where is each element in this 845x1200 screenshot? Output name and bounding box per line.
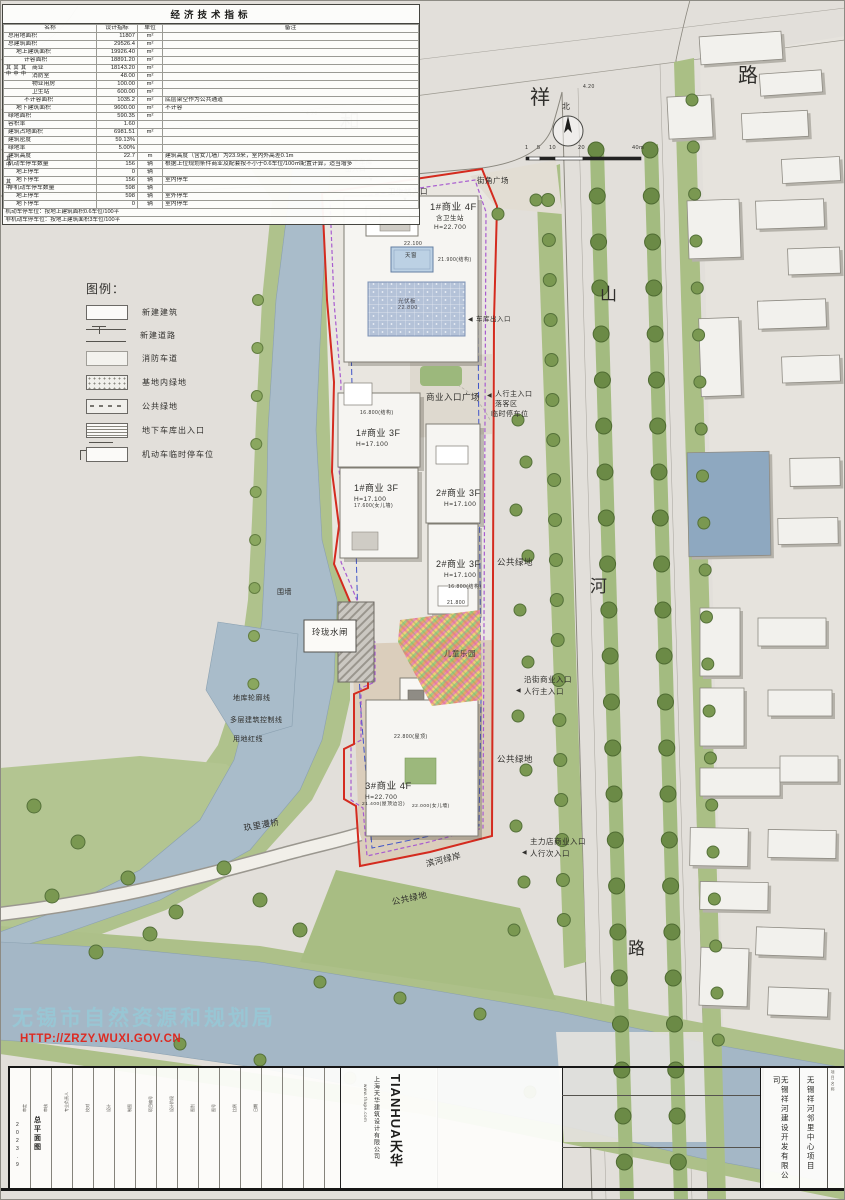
- plan-label: 儿童乐园: [444, 650, 476, 658]
- plan-label: 21.800: [447, 601, 465, 606]
- firm-website: www.thape.com: [362, 1084, 367, 1174]
- tree: [251, 391, 262, 402]
- tree: [647, 326, 663, 342]
- tree: [664, 924, 680, 940]
- tree: [691, 282, 703, 294]
- plan-label: 2#商业 3F: [436, 560, 481, 570]
- tree: [645, 234, 661, 250]
- titleblock-cell: 专业负责人: [64, 1092, 70, 1112]
- tree: [607, 832, 623, 848]
- tree: [660, 786, 676, 802]
- tree: [606, 786, 622, 802]
- tree: [510, 820, 522, 832]
- tree: [45, 889, 59, 903]
- qizhong-label: 其 中: [6, 156, 11, 168]
- plan-label: 20: [578, 146, 585, 152]
- tree: [589, 188, 605, 204]
- tree: [549, 554, 562, 567]
- tree: [598, 510, 614, 526]
- client-name: 无锡祥河建设开发有限公司: [772, 1076, 788, 1182]
- tree: [651, 464, 667, 480]
- scale-bar: [526, 157, 641, 160]
- table-row: 地下停车0辆室内停车: [4, 201, 419, 209]
- residential-building: [759, 70, 826, 99]
- residential-building: [700, 768, 783, 799]
- residential-building: [699, 31, 786, 68]
- plan-label: 人行主入口: [495, 391, 533, 399]
- tree: [249, 583, 260, 594]
- plan-label: 5: [537, 146, 541, 152]
- table-row: 绿地面积590.35m²: [4, 113, 419, 121]
- tree: [545, 354, 558, 367]
- tree: [553, 714, 566, 727]
- legend-swatch-road: [86, 329, 126, 342]
- tree: [530, 194, 542, 206]
- tree: [612, 1016, 628, 1032]
- table-row: 物业用房100.00m²: [4, 81, 419, 89]
- tree: [591, 234, 607, 250]
- table-row: 商业18143.20m²: [4, 65, 419, 73]
- tree: [252, 343, 263, 354]
- tree: [250, 487, 261, 498]
- table-footnote: 非机动车停车位：按地上建筑面积3车位/100平: [4, 217, 419, 225]
- indicator-table-header: 名称 设计指标 单位 备注: [4, 25, 419, 33]
- tree: [542, 194, 555, 207]
- titleblock-cell: 设计阶段: [169, 1096, 175, 1112]
- tree: [557, 914, 570, 927]
- legend-item: 消防车道: [86, 351, 214, 366]
- design-firm: 上海天华建筑设计有限公司: [372, 1076, 378, 1182]
- residential-building: [758, 299, 830, 332]
- tree: [121, 871, 135, 885]
- legend-swatch-parking: [86, 447, 128, 462]
- table-row: 不计容面积1035.2m²底层架空作为公共通道: [4, 97, 419, 105]
- residential-building: [741, 110, 811, 143]
- tree: [27, 799, 41, 813]
- tree: [661, 832, 677, 848]
- site-plan-page: 经济技术指标 名称 设计指标 单位 备注 总用地面积11807m²总建筑面积29…: [0, 0, 845, 1200]
- plan-label: 人行主入口: [524, 688, 564, 696]
- plan-label: 40m: [632, 146, 644, 152]
- tree: [492, 208, 504, 220]
- tree: [588, 142, 604, 158]
- table-row: 总用地面积11807m²: [4, 33, 419, 41]
- legend-item: 基地内绿地: [86, 375, 214, 390]
- indicator-table: 经济技术指标 名称 设计指标 单位 备注 总用地面积11807m²总建筑面积29…: [2, 4, 420, 225]
- tree: [648, 372, 664, 388]
- table-row: 建筑占地面积6981.51m²: [4, 129, 419, 137]
- indicator-table-title: 经济技术指标: [3, 5, 419, 24]
- plan-label: 山: [600, 286, 618, 304]
- col-header-unit: 单位: [138, 25, 163, 33]
- residential-building: [788, 247, 844, 278]
- plan-label: 天窗: [405, 254, 417, 260]
- tree: [650, 418, 666, 434]
- tree: [514, 604, 526, 616]
- plan-label: 河: [590, 578, 608, 596]
- table-row: 建筑密度59.13%: [4, 137, 419, 145]
- plan-label: 22.100: [404, 242, 422, 247]
- legend-title: 图例：: [86, 280, 214, 297]
- plan-label: H=17.100: [356, 441, 388, 448]
- plan-label: 含卫生站: [436, 215, 464, 222]
- tree: [600, 556, 616, 572]
- tree: [686, 94, 698, 106]
- plan-label: 路: [628, 940, 646, 958]
- legend-label: 基地内绿地: [142, 377, 187, 388]
- plan-label: H=22.700: [434, 224, 466, 231]
- tree: [712, 1034, 724, 1046]
- qizhong-label: 其 中: [6, 65, 11, 77]
- table-row: 卫生站600.00m²: [4, 89, 419, 97]
- tree: [693, 329, 705, 341]
- tree: [697, 470, 709, 482]
- table-row: 地下停车156辆室内停车: [4, 177, 419, 185]
- titleblock-cell: 图别: [190, 1104, 196, 1112]
- table-row: 消防室48.00m²: [4, 73, 419, 81]
- plan-label: 用地红线: [233, 736, 263, 744]
- tree: [544, 314, 557, 327]
- tree: [704, 752, 716, 764]
- tree: [708, 893, 720, 905]
- tree: [555, 794, 568, 807]
- building-1-shangye-3f-north: [338, 383, 424, 471]
- legend-label: 机动车临时停车位: [142, 449, 214, 460]
- legend-label: 公共绿地: [142, 401, 178, 412]
- residential-building: [767, 987, 831, 1020]
- tree: [652, 510, 668, 526]
- legend-swatch-garage: [86, 423, 128, 438]
- table-row: 总建筑面积29526.4m²: [4, 41, 419, 49]
- tree: [512, 710, 524, 722]
- plan-label: 地库轮廓线: [233, 695, 271, 703]
- tree: [654, 556, 670, 572]
- tree: [508, 924, 520, 936]
- tree: [254, 1054, 266, 1066]
- residential-building: [782, 355, 844, 386]
- tree: [520, 764, 532, 776]
- tianhua-logo: TIANHUA天华: [388, 1074, 402, 1182]
- plan-label: 车库出入口: [476, 316, 511, 323]
- qizhong-label: 其 中: [14, 65, 19, 77]
- tree: [554, 754, 567, 767]
- tree: [695, 423, 707, 435]
- tree: [551, 634, 564, 647]
- north-arrow: [553, 116, 583, 146]
- table-row: 机动车停车数量156辆根据上位规划条件商业及配套按不小于0.6车位/100㎡配置…: [4, 161, 419, 169]
- tree: [603, 694, 619, 710]
- legend-label: 新建道路: [140, 330, 176, 341]
- legend-item: 新建道路: [86, 329, 214, 342]
- plan-label: H=22.700: [365, 794, 397, 801]
- tree: [248, 631, 259, 642]
- plan-label: 16.800(结构): [360, 411, 394, 416]
- tree: [702, 658, 714, 670]
- col-header-note: 备注: [163, 25, 419, 33]
- plan-label: 22.000(女儿墙): [412, 804, 450, 809]
- project-name: 无锡祥河邻里中心项目: [806, 1076, 814, 1182]
- tree: [687, 141, 699, 153]
- residential-building: [690, 827, 752, 869]
- building-3-shangye-4f: [366, 678, 482, 840]
- indicator-table-foot: 机动车停车位：按地上建筑面积0.6车位/100平非机动车停车位：按地上建筑面积3…: [4, 209, 419, 225]
- tree: [522, 656, 534, 668]
- tree: [143, 927, 157, 941]
- legend: 图例： 新建建筑新建道路消防车道基地内绿地公共绿地地下车库出入口机动车临时停车位: [86, 280, 214, 471]
- col-header-name: 名称: [4, 25, 97, 33]
- plan-label: 人行次入口: [530, 850, 570, 858]
- table-row: 非机动车停车数量598辆: [4, 185, 419, 193]
- plan-label: 街角广场: [477, 177, 509, 185]
- plan-label: ◀: [487, 393, 492, 399]
- tree: [548, 474, 561, 487]
- plan-label: 祥: [530, 88, 551, 110]
- table-row: 地下建筑面积9600.00m²不计容: [4, 105, 419, 113]
- plan-label: 临时停车位: [491, 411, 529, 419]
- tree: [706, 799, 718, 811]
- title-block-bottom-line: [0, 1188, 845, 1191]
- legend-item: 新建建筑: [86, 305, 214, 320]
- tree: [642, 142, 658, 158]
- tree: [602, 648, 618, 664]
- plan-label: 16.800(结构): [448, 585, 482, 590]
- residential-building: [778, 517, 841, 547]
- tree: [707, 846, 719, 858]
- table-row: 计容面积18891.20m²: [4, 57, 419, 65]
- tree: [694, 376, 706, 388]
- plan-label: ◀: [522, 850, 527, 856]
- sheet-name: 总平面图: [33, 1116, 41, 1152]
- plan-label: 北: [562, 103, 571, 112]
- tree: [546, 394, 559, 407]
- title-block-main: [8, 1066, 764, 1190]
- sheet-date: 2023.9: [14, 1122, 19, 1170]
- plan-label: 1#商业 4F: [430, 203, 477, 213]
- legend-label: 新建建筑: [142, 307, 178, 318]
- tree: [656, 648, 672, 664]
- titleblock-cell: 比例: [232, 1104, 238, 1112]
- plan-label: 公共绿地: [497, 558, 533, 567]
- residential-building: [780, 756, 841, 785]
- tree: [643, 188, 659, 204]
- legend-label: 消防车道: [142, 353, 178, 364]
- tree: [518, 876, 530, 888]
- plan-label: 光伏板 22.800: [398, 300, 418, 312]
- title-block-columns: [10, 1068, 340, 1188]
- residential-building: [700, 688, 747, 749]
- tree: [556, 874, 569, 887]
- tree: [601, 602, 617, 618]
- titleblock-cell: 审定: [22, 1104, 28, 1112]
- plan-label: 玲珑水闸: [312, 628, 348, 637]
- tree: [666, 1016, 682, 1032]
- titleblock-cell: 设计: [106, 1104, 112, 1112]
- plan-label: ◀: [468, 317, 473, 323]
- plan-label: 21.900(结构): [438, 258, 472, 263]
- qizhong-label: 其 中: [21, 65, 26, 77]
- tree: [251, 439, 262, 450]
- legend-item: 地下车库出入口: [86, 423, 214, 438]
- table-row: 地上停车0辆: [4, 169, 419, 177]
- plan-label: 沿街商业入口: [524, 676, 572, 684]
- plan-label: ◀: [516, 688, 521, 694]
- titleblock-cell: 校对: [85, 1104, 91, 1112]
- plan-label: 主力店商业入口: [530, 838, 586, 846]
- titleblock-cell: 图号: [211, 1104, 217, 1112]
- residential-building: [756, 199, 828, 232]
- table-row: 地上停车598辆室外停车: [4, 193, 419, 201]
- titleblock-cell: 项目编号: [148, 1096, 154, 1112]
- tree: [542, 234, 555, 247]
- col-header-value: 设计指标: [97, 25, 138, 33]
- tree: [698, 517, 710, 529]
- plan-label: 落客区: [495, 401, 518, 409]
- building-2-shangye-3f-north: [426, 424, 484, 527]
- tree: [248, 679, 259, 690]
- plan-label: 路: [738, 66, 759, 88]
- tree: [659, 740, 675, 756]
- residential-building: [755, 927, 827, 960]
- tree: [250, 535, 261, 546]
- tree: [253, 295, 264, 306]
- residential-building: [699, 947, 752, 1010]
- tree: [169, 905, 183, 919]
- plan-label: H=17.100: [444, 501, 476, 508]
- plan-label: 1#商业 3F: [354, 484, 399, 494]
- watermark-agency: 无锡市自然资源和规划局: [12, 1002, 276, 1032]
- plan-label: 4.20: [583, 85, 595, 90]
- plan-label: H=17.100: [444, 572, 476, 579]
- tree: [71, 835, 85, 849]
- tree: [605, 740, 621, 756]
- residential-building-blue: [687, 451, 774, 559]
- tree: [611, 970, 627, 986]
- tree: [711, 987, 723, 999]
- tree: [700, 611, 712, 623]
- tree: [314, 976, 326, 988]
- tree: [665, 970, 681, 986]
- plan-label: 22.800(屋顶): [394, 735, 428, 740]
- tree: [663, 878, 679, 894]
- residential-building: [768, 829, 840, 861]
- tree: [597, 464, 613, 480]
- tree: [593, 326, 609, 342]
- legend-swatch-fire: [86, 351, 128, 366]
- indicator-table-body: 总用地面积11807m²总建筑面积29526.4m²地上建筑面积19926.40…: [4, 33, 419, 209]
- tree: [547, 434, 560, 447]
- residential-building: [687, 199, 744, 262]
- legend-items: 新建建筑新建道路消防车道基地内绿地公共绿地地下车库出入口机动车临时停车位: [86, 305, 214, 462]
- tree: [549, 514, 562, 527]
- tree: [610, 924, 626, 940]
- residential-building: [781, 156, 843, 186]
- legend-swatch-pubgreen: [86, 399, 128, 414]
- titleblock-cell: 日期: [253, 1104, 259, 1112]
- plan-label: 公共绿地: [497, 755, 533, 764]
- plan-label: 多层建筑控制线: [230, 717, 283, 725]
- tree: [703, 705, 715, 717]
- plan-label: 商业入口广场: [426, 393, 480, 402]
- plan-label: 21.400(屋顶边沿): [362, 802, 405, 807]
- table-row: 地上建筑面积19926.40m²: [4, 49, 419, 57]
- tree: [89, 945, 103, 959]
- plan-label: 10: [549, 146, 556, 152]
- tree: [594, 372, 610, 388]
- tree: [543, 274, 556, 287]
- tree: [474, 1008, 486, 1020]
- tree: [655, 602, 671, 618]
- plan-label: 2#商业 3F: [436, 489, 481, 499]
- residential-building: [790, 458, 844, 490]
- table-row: 绿地率5.00%: [4, 145, 419, 153]
- titleblock-cell: 审核: [43, 1104, 49, 1112]
- watermark-url: HTTP://ZRZY.WUXI.GOV.CN: [20, 1033, 181, 1045]
- tree: [699, 564, 711, 576]
- table-footnote: 机动车停车位：按地上建筑面积0.6车位/100平: [4, 209, 419, 217]
- tree: [394, 992, 406, 1004]
- tree: [609, 878, 625, 894]
- residential-building: [758, 618, 829, 649]
- legend-item: 公共绿地: [86, 399, 214, 414]
- plan-label: 围墙: [277, 589, 292, 597]
- tree: [710, 940, 722, 952]
- tree: [217, 861, 231, 875]
- tree: [550, 594, 563, 607]
- legend-swatch-bld: [86, 305, 128, 320]
- titleblock-cell: 制图: [127, 1104, 133, 1112]
- plan-label: 1: [525, 146, 529, 152]
- plan-label: 1#商业 3F: [356, 429, 401, 439]
- plan-label: 3#商业 4F: [365, 782, 412, 792]
- tree: [690, 235, 702, 247]
- tree: [596, 418, 612, 434]
- qizhong-label: 其 中: [6, 179, 11, 191]
- tree: [293, 923, 307, 937]
- residential-building: [768, 690, 835, 719]
- plan-label: 17.600(女儿墙): [354, 504, 393, 509]
- legend-label: 地下车库出入口: [142, 425, 205, 436]
- tree: [646, 280, 662, 296]
- tree: [253, 893, 267, 907]
- tree: [510, 504, 522, 516]
- tree: [520, 456, 532, 468]
- residential-building: [699, 317, 745, 399]
- right-col-label: 项目名称: [831, 1070, 835, 1093]
- tree: [689, 188, 701, 200]
- tree: [657, 694, 673, 710]
- legend-item: 机动车临时停车位: [86, 447, 214, 462]
- legend-swatch-sitegreen: [86, 375, 128, 390]
- table-row: 容积率1.60: [4, 121, 419, 129]
- plan-label: H=17.100: [354, 496, 386, 503]
- table-row: 建筑高度22.7m建筑高度（含女儿墙）为23.9米，室内外高差0.1m: [4, 153, 419, 161]
